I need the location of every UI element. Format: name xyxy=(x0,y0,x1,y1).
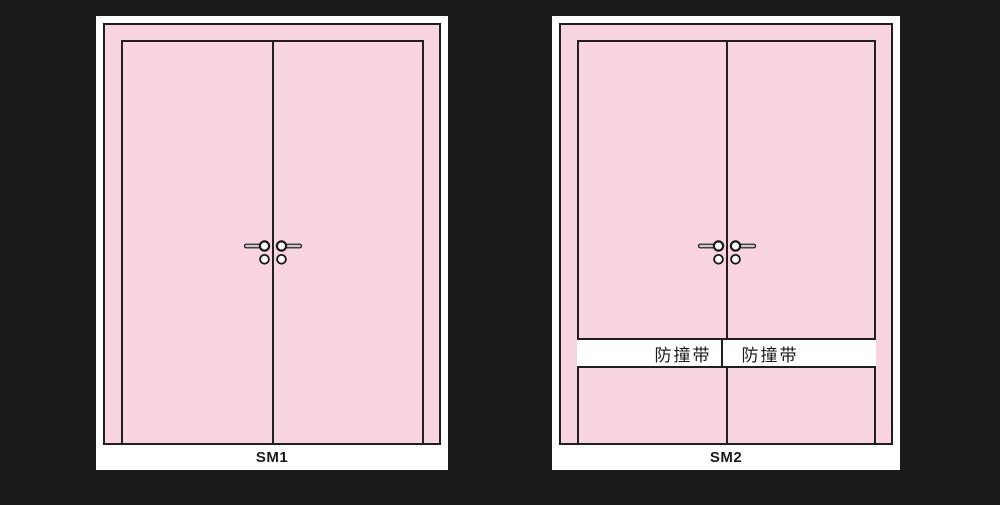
door-diagram-sm1: SM1 xyxy=(96,16,448,470)
drawing-canvas: { "colors": { "background": "#1a1a1a", "… xyxy=(0,0,1000,505)
door-handle-icon xyxy=(667,231,787,271)
door-frame: 防撞带 防撞带 xyxy=(559,23,893,445)
anti-collision-strip-label-left: 防撞带 xyxy=(577,340,722,366)
anti-collision-strip-label-right: 防撞带 xyxy=(722,340,877,366)
panel-label: SM2 xyxy=(710,449,742,466)
door-frame xyxy=(103,23,441,445)
door-leaves: 防撞带 防撞带 xyxy=(577,40,876,445)
anti-collision-strip: 防撞带 防撞带 xyxy=(577,338,876,368)
panel-label-strip: SM2 xyxy=(552,445,900,470)
panel-label: SM1 xyxy=(256,449,288,466)
door-diagram-sm2: 防撞带 防撞带 SM2 xyxy=(552,16,900,470)
door-handle-icon xyxy=(213,231,333,271)
door-leaves xyxy=(121,40,424,445)
panel-label-strip: SM1 xyxy=(96,445,448,470)
